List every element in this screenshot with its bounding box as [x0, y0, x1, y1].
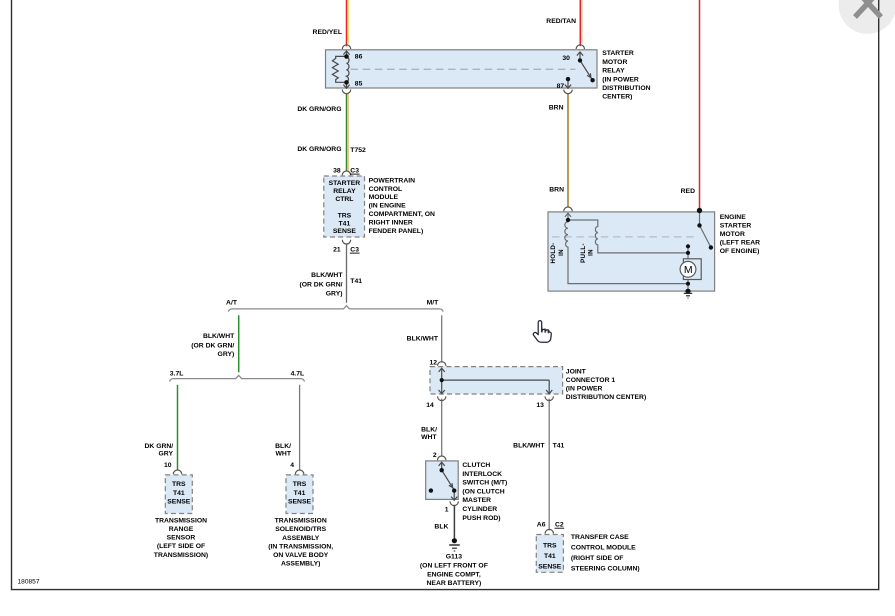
svg-text:T41: T41 [553, 443, 565, 450]
svg-text:BRN: BRN [549, 105, 564, 112]
svg-text:87: 87 [557, 83, 565, 90]
svg-text:BLK/: BLK/ [275, 443, 291, 450]
svg-text:10: 10 [164, 462, 172, 469]
svg-text:(ON CLUTCH: (ON CLUTCH [462, 488, 504, 495]
svg-text:WHT: WHT [276, 450, 292, 457]
svg-text:CONTROL: CONTROL [369, 186, 403, 193]
svg-text:BRN: BRN [549, 187, 564, 194]
svg-text:(LEFT REAR: (LEFT REAR [720, 239, 760, 246]
svg-text:RELAY: RELAY [602, 68, 625, 75]
svg-text:DK GRN/ORG: DK GRN/ORG [297, 106, 341, 113]
svg-text:ASSEMBLY: ASSEMBLY [282, 535, 320, 542]
svg-text:30: 30 [562, 55, 570, 62]
svg-text:BLK/WHT: BLK/WHT [311, 272, 343, 279]
svg-text:SENSOR: SENSOR [167, 535, 196, 542]
svg-text:BLK/WHT: BLK/WHT [203, 333, 235, 340]
svg-text:(ON LEFT FRONT OF: (ON LEFT FRONT OF [420, 563, 488, 570]
svg-text:TRS: TRS [543, 542, 557, 549]
svg-text:TRS: TRS [293, 481, 307, 488]
svg-text:A6: A6 [537, 522, 546, 529]
svg-text:BLK: BLK [434, 523, 448, 530]
svg-text:IN: IN [588, 249, 595, 256]
svg-text:85: 85 [355, 81, 363, 88]
svg-text:T41: T41 [544, 553, 556, 560]
svg-text:CONTROL MODULE: CONTROL MODULE [571, 544, 636, 551]
svg-text:G113: G113 [446, 554, 462, 561]
svg-text:BLK/WHT: BLK/WHT [407, 336, 439, 343]
svg-text:CENTER): CENTER) [602, 94, 632, 101]
svg-text:TRS: TRS [172, 481, 186, 488]
svg-text:STEERING COLUMN): STEERING COLUMN) [571, 565, 640, 572]
svg-text:GRY: GRY [159, 450, 174, 457]
svg-text:FENDER PANEL): FENDER PANEL) [369, 228, 424, 235]
svg-text:C3: C3 [350, 247, 359, 254]
svg-text:RED/YEL: RED/YEL [313, 29, 342, 36]
svg-text:180857: 180857 [18, 579, 40, 586]
svg-text:RED: RED [681, 188, 695, 195]
svg-text:GRY): GRY) [326, 291, 343, 298]
svg-text:A/T: A/T [226, 299, 238, 306]
svg-text:2: 2 [433, 452, 437, 459]
svg-text:DISTRIBUTION: DISTRIBUTION [602, 85, 650, 92]
svg-text:HOLD-: HOLD- [550, 242, 557, 263]
svg-text:C3: C3 [350, 168, 359, 175]
svg-text:STARTER: STARTER [720, 223, 752, 230]
svg-text:DISTRIBUTION CENTER): DISTRIBUTION CENTER) [566, 394, 646, 401]
svg-text:CLUTCH: CLUTCH [462, 462, 490, 469]
svg-text:STARTER: STARTER [602, 50, 634, 57]
svg-text:TRANSMISSION: TRANSMISSION [155, 517, 207, 524]
svg-text:RIGHT INNER: RIGHT INNER [369, 219, 413, 226]
svg-text:PUSH ROD): PUSH ROD) [462, 515, 500, 522]
svg-text:RANGE: RANGE [169, 526, 194, 533]
svg-text:JOINT: JOINT [566, 369, 587, 376]
svg-text:TRS: TRS [338, 212, 352, 219]
svg-text:MOTOR: MOTOR [720, 231, 745, 238]
svg-text:IN: IN [558, 249, 565, 256]
svg-text:4.7L: 4.7L [291, 370, 305, 377]
svg-text:SENSE: SENSE [538, 563, 562, 570]
svg-text:(IN POWER: (IN POWER [566, 385, 603, 392]
svg-text:SENSE: SENSE [288, 499, 312, 506]
svg-text:12: 12 [430, 359, 438, 366]
svg-text:SENSE: SENSE [167, 499, 191, 506]
svg-text:MODULE: MODULE [369, 194, 399, 201]
svg-text:T41: T41 [294, 490, 306, 497]
svg-text:MASTER: MASTER [462, 497, 491, 504]
svg-text:RELAY: RELAY [333, 188, 356, 195]
svg-text:OF ENGINE): OF ENGINE) [720, 248, 760, 255]
svg-text:ENGINE: ENGINE [720, 214, 747, 221]
svg-text:21: 21 [333, 247, 341, 254]
svg-text:(LEFT SIDE OF: (LEFT SIDE OF [157, 543, 205, 550]
svg-text:C2: C2 [555, 522, 564, 529]
svg-text:T41: T41 [339, 220, 351, 227]
svg-text:ENGINE COMPT,: ENGINE COMPT, [427, 571, 481, 578]
svg-text:COMPARTMENT, ON: COMPARTMENT, ON [369, 211, 435, 218]
svg-text:1: 1 [445, 507, 449, 514]
svg-text:(IN ENGINE: (IN ENGINE [369, 203, 406, 210]
svg-text:POWERTRAIN: POWERTRAIN [369, 177, 416, 184]
svg-text:4: 4 [290, 462, 294, 469]
svg-text:(OR DK GRN/: (OR DK GRN/ [299, 282, 342, 289]
svg-text:PULL-: PULL- [580, 243, 587, 263]
svg-text:(RIGHT SIDE OF: (RIGHT SIDE OF [571, 555, 624, 562]
svg-text:SENSE: SENSE [333, 228, 357, 235]
svg-text:T41: T41 [173, 490, 185, 497]
svg-text:SWITCH (M/T): SWITCH (M/T) [462, 480, 507, 487]
svg-text:CTRL: CTRL [335, 196, 353, 203]
svg-text:MOTOR: MOTOR [602, 59, 627, 66]
svg-text:M/T: M/T [427, 300, 440, 307]
svg-text:GRY): GRY) [218, 351, 235, 358]
svg-text:T41: T41 [350, 278, 362, 285]
svg-text:M: M [684, 264, 693, 276]
svg-text:T752: T752 [350, 147, 366, 154]
svg-text:(IN TRANSMISSION,: (IN TRANSMISSION, [268, 543, 333, 550]
svg-text:TRANSMISSION): TRANSMISSION) [154, 552, 208, 559]
svg-text:STARTER: STARTER [329, 180, 361, 187]
svg-text:INTERLOCK: INTERLOCK [462, 471, 502, 478]
svg-text:(OR DK GRN/: (OR DK GRN/ [191, 342, 234, 349]
svg-text:BLK/WHT: BLK/WHT [513, 443, 545, 450]
svg-text:WHT: WHT [421, 434, 437, 441]
svg-text:SOLENOID/TRS: SOLENOID/TRS [275, 526, 326, 533]
svg-text:DK GRN/ORG: DK GRN/ORG [297, 146, 341, 153]
svg-text:TRANSFER CASE: TRANSFER CASE [571, 534, 629, 541]
svg-text:NEAR BATTERY): NEAR BATTERY) [427, 580, 482, 587]
svg-text:BLK/: BLK/ [421, 427, 437, 434]
svg-text:ASSEMBLY): ASSEMBLY) [281, 561, 320, 568]
svg-text:CYLINDER: CYLINDER [462, 506, 497, 513]
svg-text:3.7L: 3.7L [170, 370, 184, 377]
svg-text:14: 14 [426, 402, 434, 409]
svg-text:(IN POWER: (IN POWER [602, 76, 639, 83]
svg-text:38: 38 [333, 168, 341, 175]
svg-text:TRANSMISSION: TRANSMISSION [275, 518, 327, 525]
svg-text:RED/TAN: RED/TAN [546, 18, 576, 25]
svg-text:86: 86 [355, 53, 363, 60]
svg-text:CONNECTOR 1: CONNECTOR 1 [566, 377, 616, 384]
svg-text:DK GRN/: DK GRN/ [144, 443, 173, 450]
svg-text:ON VALVE BODY: ON VALVE BODY [273, 552, 329, 559]
svg-text:13: 13 [536, 402, 544, 409]
